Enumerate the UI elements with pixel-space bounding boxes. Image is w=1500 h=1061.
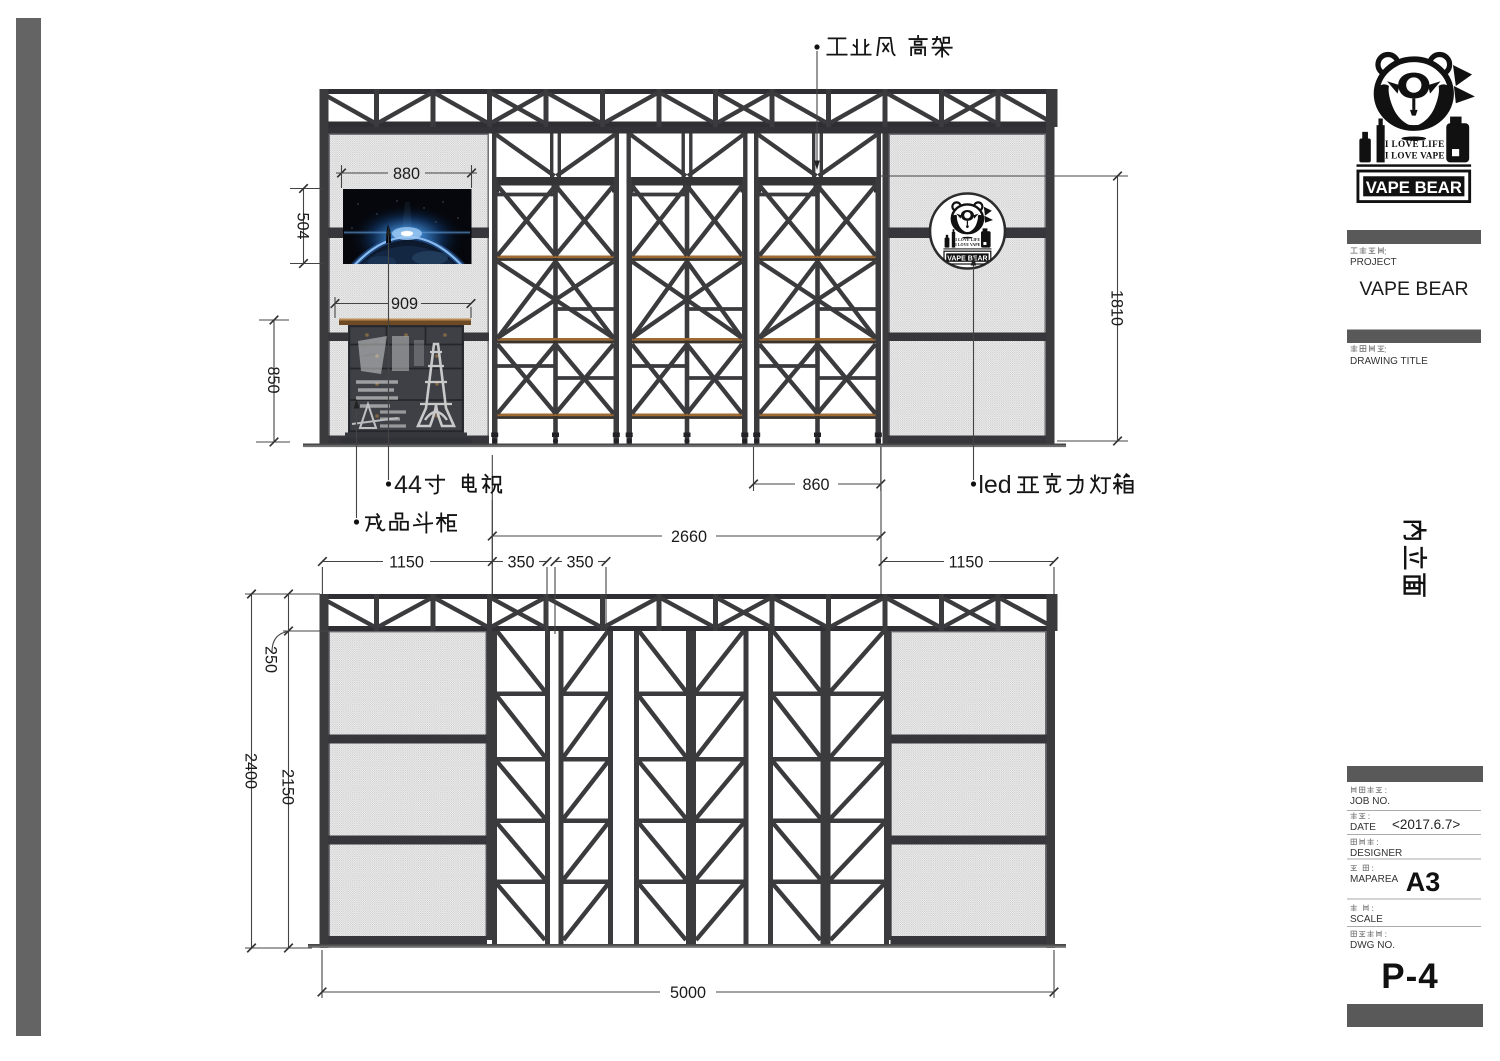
svg-text:350: 350	[507, 554, 534, 572]
svg-text:5000: 5000	[670, 984, 706, 1002]
svg-text:1810: 1810	[1108, 290, 1126, 326]
svg-text:1150: 1150	[949, 554, 984, 572]
svg-text:909: 909	[391, 295, 418, 313]
svg-text:350: 350	[566, 554, 593, 572]
svg-text:SCALE: SCALE	[1350, 914, 1383, 925]
svg-text:<2017.6.7>: <2017.6.7>	[1392, 817, 1460, 832]
svg-text:A3: A3	[1406, 867, 1441, 897]
svg-text:PROJECT: PROJECT	[1350, 257, 1397, 268]
svg-text::: :	[1384, 247, 1387, 257]
svg-text::: :	[1372, 863, 1374, 873]
svg-text::: :	[1385, 785, 1387, 795]
svg-text:2150: 2150	[279, 769, 297, 805]
svg-text::: :	[1385, 929, 1387, 939]
svg-text:1150: 1150	[389, 554, 424, 572]
svg-text:DESIGNER: DESIGNER	[1350, 848, 1402, 859]
svg-text:250: 250	[262, 646, 280, 673]
svg-text:DWG NO.: DWG NO.	[1350, 940, 1395, 951]
svg-text::: :	[1384, 345, 1387, 355]
svg-text:MAPAREA: MAPAREA	[1350, 874, 1398, 885]
svg-text:2660: 2660	[671, 528, 707, 546]
svg-text:DRAWING TITLE: DRAWING TITLE	[1350, 356, 1428, 367]
svg-text:880: 880	[393, 165, 420, 183]
svg-text:2400: 2400	[242, 753, 260, 789]
svg-text:JOB NO.: JOB NO.	[1350, 796, 1390, 807]
svg-text:VAPE BEAR: VAPE BEAR	[1359, 278, 1468, 300]
svg-text:860: 860	[802, 476, 829, 494]
svg-text:led: led	[978, 471, 1011, 499]
svg-text::: :	[1372, 903, 1374, 913]
svg-text:DATE: DATE	[1350, 822, 1376, 833]
svg-text:850: 850	[264, 366, 282, 393]
svg-text::: :	[1376, 837, 1378, 847]
svg-text:P-4: P-4	[1381, 957, 1438, 996]
svg-text::: :	[1368, 811, 1370, 821]
svg-text:44: 44	[394, 471, 422, 499]
svg-text:504: 504	[294, 212, 312, 239]
